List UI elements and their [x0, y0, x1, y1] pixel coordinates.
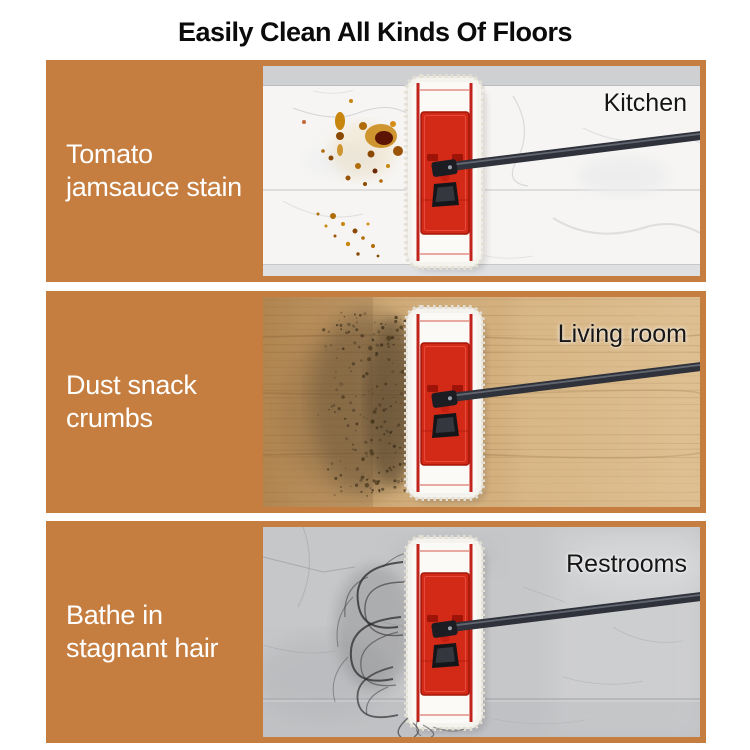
room-label: Restrooms — [566, 550, 687, 579]
page: Easily Clean All Kinds Of Floors Tomato … — [0, 0, 750, 750]
stain-label: Dust snack crumbs — [66, 369, 258, 435]
panel-living-room: Dust snack crumbs — [46, 291, 706, 513]
room-label: Kitchen — [604, 89, 687, 118]
panel-restrooms: Bathe in stagnant hair — [46, 521, 706, 743]
page-title: Easily Clean All Kinds Of Floors — [0, 17, 750, 48]
stain-label: Tomato jamsauce stain — [66, 138, 258, 204]
panel-kitchen: Tomato jamsauce stain — [46, 60, 706, 282]
stain-label: Bathe in stagnant hair — [66, 599, 258, 665]
floor-photo-living-room: Living room — [263, 297, 700, 507]
room-label: Living room — [558, 320, 687, 349]
floor-photo-restrooms: Restrooms — [263, 527, 700, 737]
floor-photo-kitchen: Kitchen — [263, 66, 700, 276]
